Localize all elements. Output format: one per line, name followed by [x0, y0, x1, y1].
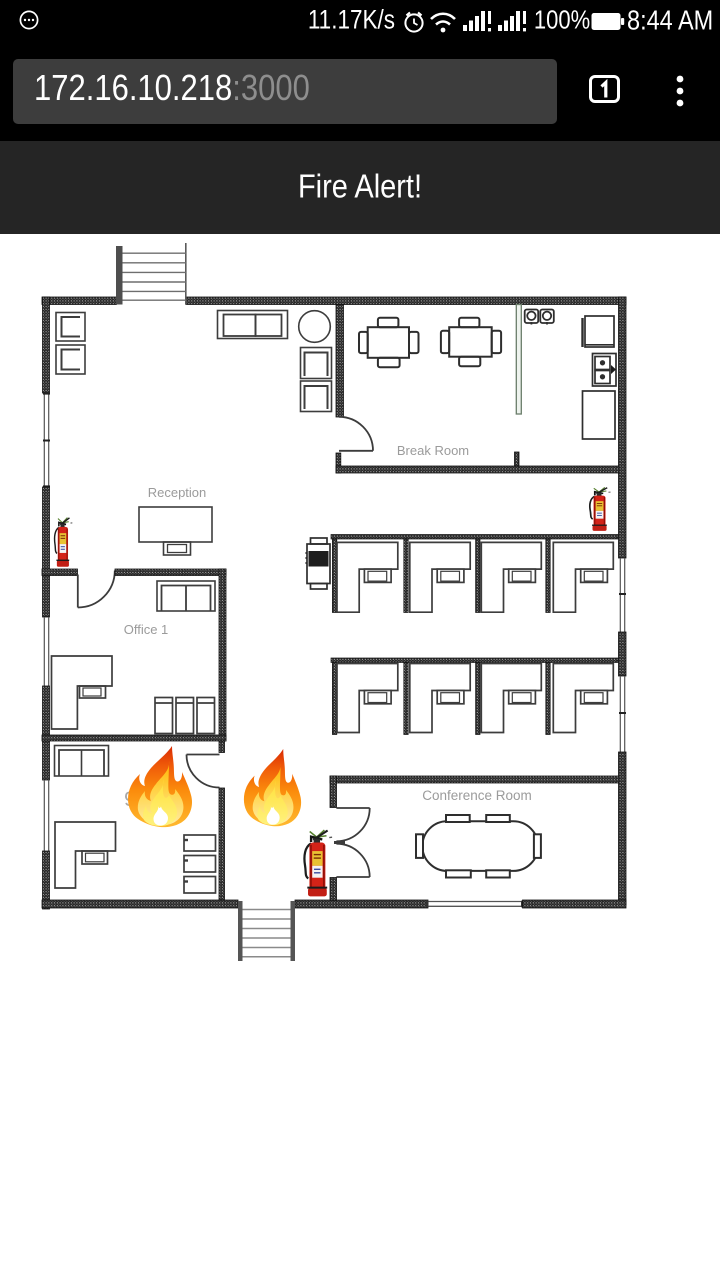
svg-text:Break Room: Break Room: [397, 443, 469, 458]
svg-text:Office 1: Office 1: [124, 622, 169, 637]
svg-text:Conference Room: Conference Room: [422, 788, 532, 803]
svg-text:Reception: Reception: [148, 485, 207, 500]
